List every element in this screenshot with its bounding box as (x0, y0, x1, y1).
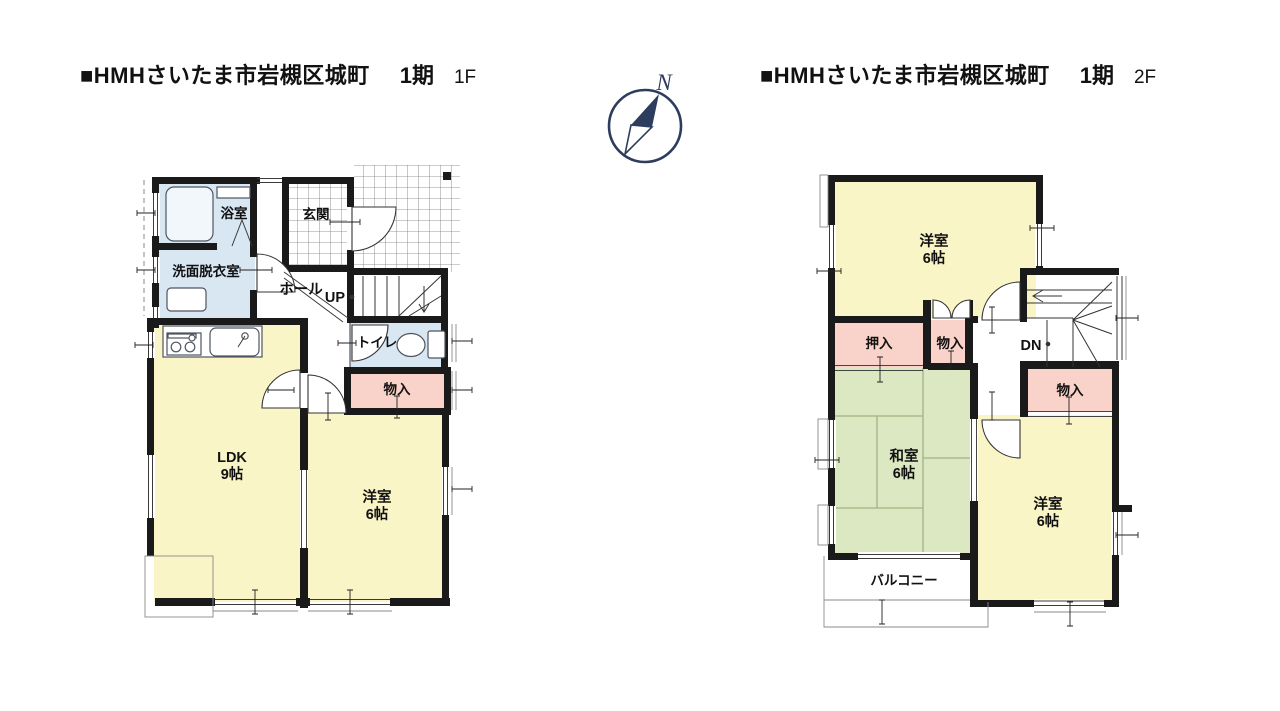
label-hall: ホール (279, 281, 323, 298)
phase-label-2f: 1期 (1080, 63, 1114, 88)
label-western1-size: 6帖 (923, 249, 946, 267)
label-western-1f: 洋室 (363, 488, 392, 506)
floor-label-2f: 2F (1134, 67, 1156, 88)
up-arrow-dot (350, 295, 355, 300)
bath-counter (217, 187, 250, 198)
compass-needle-south (625, 125, 652, 154)
label-entrance: 玄関 (303, 206, 330, 222)
label-western2-size: 6帖 (1037, 512, 1060, 530)
stairs-2f (1027, 282, 1112, 367)
kitchen-sink (210, 328, 259, 356)
label-japanese: 和室 (890, 447, 919, 465)
label-ldk: LDK (217, 450, 247, 466)
floor-plan-1f: 浴室 洗面脱衣室 玄関 ホール UP トイレ 物入 LDK 9帖 洋室 6帖 (135, 165, 472, 617)
label-washroom: 洗面脱衣室 (172, 263, 240, 279)
entrance-tile-grid (289, 184, 347, 265)
label-toilet: トイレ (357, 335, 398, 350)
label-japanese-size: 6帖 (893, 464, 916, 482)
washbasin (167, 288, 206, 311)
bathtub (166, 187, 213, 241)
label-ldk-size: 9帖 (221, 465, 244, 483)
label-western1: 洋室 (920, 232, 949, 250)
compass-needle-north (631, 94, 659, 127)
label-up: UP (325, 290, 345, 306)
phase-label-1f: 1期 (400, 63, 434, 88)
toilet-bowl (397, 334, 425, 357)
dn-arrow-dot (1046, 342, 1051, 347)
label-closet: 押入 (866, 335, 894, 351)
balcony-outline (824, 556, 988, 627)
label-storage-1f: 物入 (384, 381, 411, 397)
project-name-2f: ■HMHさいたま市岩槻区城町 (760, 63, 1050, 88)
label-western2: 洋室 (1034, 495, 1063, 513)
compass-north-label: N (655, 70, 673, 95)
compass: N (609, 70, 681, 162)
floor-title-1f: ■HMHさいたま市岩槻区城町1期1F (80, 58, 476, 90)
label-storage-right: 物入 (1057, 382, 1085, 398)
floor-plan-sheet: 浴室 洗面脱衣室 玄関 ホール UP トイレ 物入 LDK 9帖 洋室 6帖 N (0, 0, 1280, 711)
floor-plan-2f: 洋室 6帖 押入 物入 DN 物入 和室 6帖 洋室 6帖 バルコニー (815, 175, 1138, 627)
project-name-1f: ■HMHさいたま市岩槻区城町 (80, 63, 370, 88)
sliding-door-ldk (302, 470, 307, 548)
western-door-swing (308, 375, 346, 413)
toilet-tank (428, 331, 445, 358)
floor-label-1f: 1F (454, 67, 476, 88)
label-dn: DN (1021, 338, 1042, 354)
stairs-1f (350, 276, 441, 316)
label-balcony: バルコニー (870, 573, 937, 588)
label-storage-mid: 物入 (937, 335, 965, 351)
label-bath: 浴室 (221, 205, 248, 221)
plans-svg: 浴室 洗面脱衣室 玄関 ホール UP トイレ 物入 LDK 9帖 洋室 6帖 N (0, 0, 1280, 711)
label-western-1f-size: 6帖 (366, 505, 389, 523)
floor-title-2f: ■HMHさいたま市岩槻区城町1期2F (760, 58, 1156, 90)
